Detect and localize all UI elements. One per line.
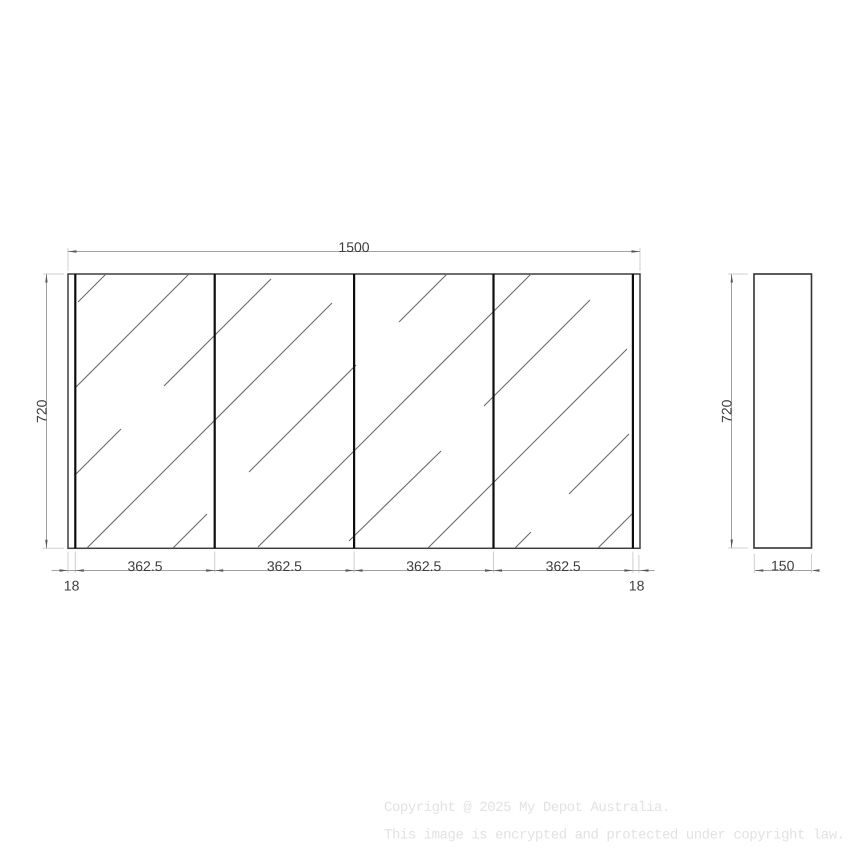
svg-text:This image is encrypted and pr: This image is encrypted and protected un… [384,827,845,843]
svg-text:18: 18 [64,578,80,594]
svg-text:18: 18 [629,578,645,594]
svg-text:1500: 1500 [338,239,369,255]
svg-text:362.5: 362.5 [546,558,581,574]
svg-text:720: 720 [718,399,734,423]
svg-text:362.5: 362.5 [127,558,162,574]
svg-text:362.5: 362.5 [406,558,441,574]
svg-text:720: 720 [33,399,49,423]
svg-text:150: 150 [771,558,795,574]
svg-text:Copyright @ 2025 My Depot Aust: Copyright @ 2025 My Depot Australia. [384,800,670,816]
svg-text:362.5: 362.5 [267,558,302,574]
